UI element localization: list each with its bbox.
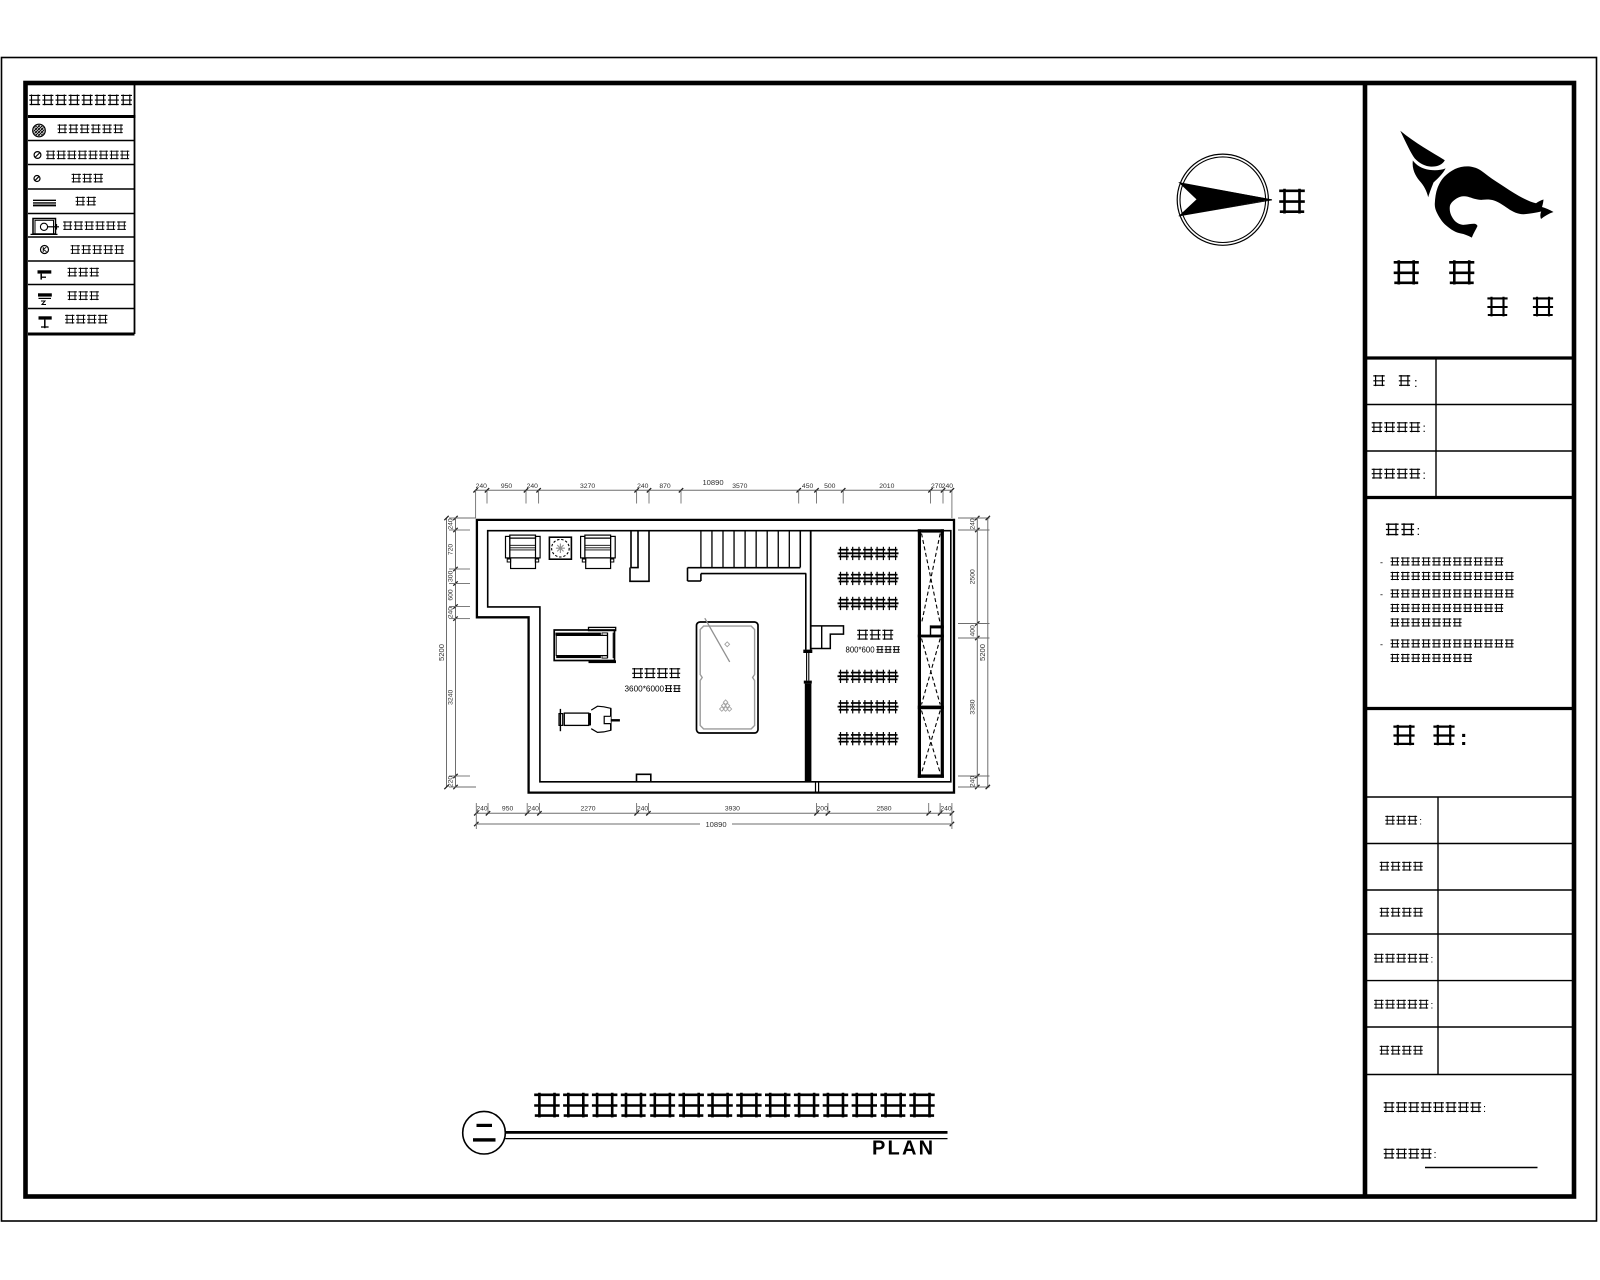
svg-text:800*600: 800*600 xyxy=(846,646,876,655)
svg-text:200: 200 xyxy=(817,806,829,813)
svg-text:5200: 5200 xyxy=(978,644,987,661)
svg-text:2010: 2010 xyxy=(879,483,894,490)
svg-text::: : xyxy=(1431,954,1434,965)
svg-text:240: 240 xyxy=(637,483,649,490)
svg-text:240: 240 xyxy=(476,483,488,490)
svg-text:300: 300 xyxy=(448,570,455,582)
svg-text:240: 240 xyxy=(448,607,455,619)
svg-text:10890: 10890 xyxy=(702,478,723,487)
svg-text:600: 600 xyxy=(448,589,455,601)
svg-text:3930: 3930 xyxy=(725,806,740,813)
svg-text:240: 240 xyxy=(940,806,952,813)
svg-text:240: 240 xyxy=(942,483,954,490)
svg-text:-: - xyxy=(1380,558,1383,568)
svg-text:-: - xyxy=(1380,590,1383,600)
svg-text:240: 240 xyxy=(528,806,540,813)
svg-text:500: 500 xyxy=(824,483,836,490)
svg-text:3570: 3570 xyxy=(732,483,747,490)
svg-text:240: 240 xyxy=(476,806,488,813)
svg-text::: : xyxy=(1414,375,1418,390)
svg-text:240: 240 xyxy=(527,483,539,490)
svg-text:240: 240 xyxy=(969,518,976,530)
svg-text::: : xyxy=(1423,421,1426,435)
svg-text:3600*6000: 3600*6000 xyxy=(625,685,665,694)
svg-text:240: 240 xyxy=(969,776,976,788)
svg-text:870: 870 xyxy=(659,483,671,490)
svg-text:2580: 2580 xyxy=(876,806,891,813)
svg-text:2500: 2500 xyxy=(969,569,976,584)
svg-text:950: 950 xyxy=(502,806,514,813)
svg-text:-: - xyxy=(1380,640,1383,650)
svg-text:400: 400 xyxy=(969,625,976,637)
svg-text::: : xyxy=(1419,816,1422,827)
svg-text::: : xyxy=(1483,1103,1486,1115)
svg-text:3240: 3240 xyxy=(448,690,455,705)
svg-text:3380: 3380 xyxy=(969,699,976,714)
svg-text::: : xyxy=(1434,1149,1437,1161)
svg-text:240: 240 xyxy=(637,806,649,813)
svg-text:950: 950 xyxy=(501,483,513,490)
svg-text:450: 450 xyxy=(802,483,814,490)
svg-text:720: 720 xyxy=(448,544,455,556)
svg-text:2270: 2270 xyxy=(580,806,595,813)
svg-text:3270: 3270 xyxy=(580,483,595,490)
svg-text:10890: 10890 xyxy=(705,820,726,829)
svg-text::: : xyxy=(1431,1000,1434,1011)
svg-text:240: 240 xyxy=(448,518,455,530)
svg-text:5200: 5200 xyxy=(437,644,446,661)
svg-text::: : xyxy=(1460,725,1467,750)
svg-text::: : xyxy=(1423,468,1426,482)
svg-text:PLAN: PLAN xyxy=(872,1138,935,1160)
svg-text::: : xyxy=(1417,523,1421,538)
